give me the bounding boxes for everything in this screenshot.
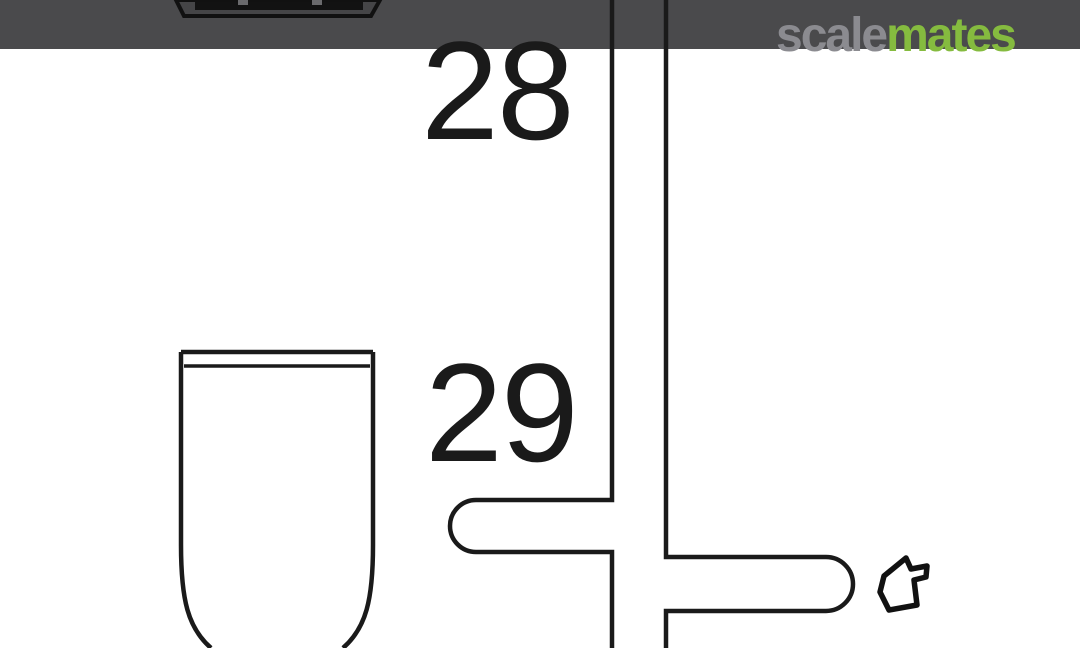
scalemates-watermark: scalemates xyxy=(776,12,1015,60)
watermark-mates-text: mates xyxy=(886,9,1015,62)
clipped-part-inner-band xyxy=(195,2,363,10)
clipped-part-notch-right xyxy=(312,0,322,5)
clipped-part-silhouette xyxy=(176,0,380,16)
clipped-part-notch-left xyxy=(238,0,248,5)
instruction-diagram-canvas: 28 29 scalemates xyxy=(0,0,1080,648)
tank-wall-left xyxy=(181,352,211,648)
part-number-28: 28 xyxy=(421,21,573,161)
watermark-scale-text: scale xyxy=(776,9,886,62)
part-number-29: 29 xyxy=(425,343,577,483)
part-outline-tank xyxy=(181,352,373,648)
small-part-outline-icon xyxy=(880,558,927,610)
leader-line-right xyxy=(666,0,853,648)
tank-wall-right xyxy=(343,352,373,648)
